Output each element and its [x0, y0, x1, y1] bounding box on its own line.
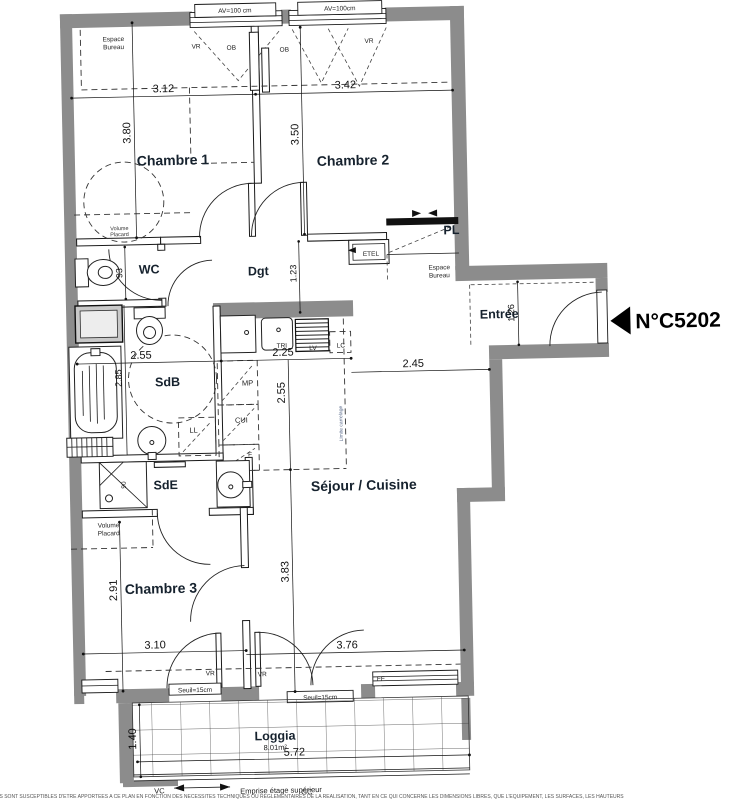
dim-3-42: 3.42: [335, 79, 357, 91]
dim-93: 93: [114, 268, 124, 278]
label-ob-w2: OB: [280, 47, 290, 54]
bathtub-icon: [69, 346, 123, 439]
label-placard-1: Placard: [110, 232, 129, 238]
radiator-icon: [67, 437, 113, 457]
label-seuil-1: Seuil=15cm: [178, 687, 212, 695]
label-etel: ETEL: [363, 251, 380, 258]
dim-3-76: 3.76: [336, 639, 358, 651]
label-shower-90: 90: [121, 481, 128, 489]
label-sejour: Séjour / Cuisine: [311, 476, 417, 494]
label-lc: LC: [337, 342, 346, 349]
label-dgt: Dgt: [248, 264, 270, 278]
label-av1: AV=100 cm: [218, 7, 251, 15]
label-ll: LL: [189, 426, 198, 435]
fixed-window-ff: [373, 670, 458, 686]
dim-1-26: 1.26: [506, 304, 516, 322]
label-wc: WC: [139, 262, 160, 276]
kitchen-sink-icon: [220, 315, 256, 353]
dim-1-23: 1.23: [288, 265, 298, 283]
toilet-sdb-icon: [134, 307, 166, 345]
label-sdb: SdB: [155, 375, 180, 390]
dim-3-12: 3.12: [153, 83, 175, 95]
unit-marker: N°C5202: [610, 305, 721, 335]
label-sde: SdE: [153, 478, 178, 493]
window-chambre1: [190, 3, 282, 28]
label-bureau-1: Bureau: [103, 44, 124, 51]
loggia: [132, 696, 470, 781]
label-espace-2: Espace: [428, 264, 450, 271]
vanity-sdb-icon: [75, 305, 123, 343]
window-opening-indicators: [194, 27, 387, 93]
label-pl: PL: [443, 223, 460, 237]
window-chambre2: [289, 1, 386, 26]
volet-roulant-line: [106, 664, 461, 671]
dim-2-55b: 2.55: [276, 382, 288, 404]
label-lv: LV: [309, 345, 317, 352]
footer-disclaimer: ONS SONT SUSCEPTIBLES D'ETRE APPORTEES A…: [0, 794, 624, 800]
label-mp: MP: [242, 378, 253, 387]
dim-2-85: 2.85: [113, 369, 123, 387]
vc-arrow-right-icon: [220, 783, 230, 790]
toilet-wc-icon: [75, 258, 120, 287]
label-vr-b1: VR: [206, 670, 215, 677]
label-volume-2: Volume: [98, 522, 120, 529]
dim-3-10: 3.10: [144, 639, 166, 651]
label-vr-w1: VR: [191, 43, 200, 50]
label-espace-1: Espace: [102, 36, 124, 43]
basin-sde-icon: [216, 460, 252, 507]
pl-arrow-right-icon: [412, 210, 421, 217]
label-chambre1: Chambre 1: [137, 151, 210, 169]
unit-arrow-icon: [610, 306, 631, 334]
label-f: F: [248, 451, 252, 458]
label-ff: FF: [377, 676, 385, 683]
label-chambre3: Chambre 3: [125, 580, 198, 598]
exterior-walls: [60, 3, 618, 788]
label-ob-w1: OB: [227, 45, 237, 52]
fixtures: [63, 254, 332, 510]
appliance-ll: [178, 417, 216, 456]
plan-rotated-group: Chambre 1 Chambre 2 Chambre 3 WC Dgt SdB…: [58, 0, 731, 800]
dim-3-80: 3.80: [121, 122, 133, 144]
label-vr-b2: VR: [258, 671, 267, 678]
label-placard-2: Placard: [98, 530, 121, 537]
label-bureau-2: Bureau: [429, 272, 450, 279]
dim-3-50: 3.50: [289, 124, 301, 146]
pl-arrow-left-icon: [428, 209, 437, 216]
dim-2-55: 2.55: [130, 349, 152, 361]
label-chambre2: Chambre 2: [317, 151, 390, 169]
entrance-door-leaf: [597, 290, 608, 343]
floor-plan-svg: Chambre 1 Chambre 2 Chambre 3 WC Dgt SdB…: [0, 0, 732, 800]
dim-2-91: 2.91: [108, 579, 120, 601]
sde-door: [154, 462, 185, 468]
label-seuil-2: Seuil=15cm: [303, 694, 337, 702]
label-av2: AV=100cm: [324, 5, 356, 13]
label-cui: CUI: [235, 415, 248, 424]
dim-2-25: 2.25: [272, 347, 294, 359]
dim-3-83: 3.83: [279, 561, 291, 583]
unit-number: N°C5202: [635, 309, 721, 334]
limite-carrelage-line: [343, 318, 346, 468]
label-loggia: Loggia: [254, 729, 296, 744]
label-limite-carrelage: Limite carrelage: [338, 405, 345, 441]
dim-2-45: 2.45: [402, 358, 424, 370]
dim-5-72: 5.72: [284, 746, 306, 758]
floor-plan-page: Chambre 1 Chambre 2 Chambre 3 WC Dgt SdB…: [0, 0, 732, 800]
label-vr-w2: VR: [364, 38, 373, 45]
dim-1-40: 1.40: [127, 728, 139, 750]
